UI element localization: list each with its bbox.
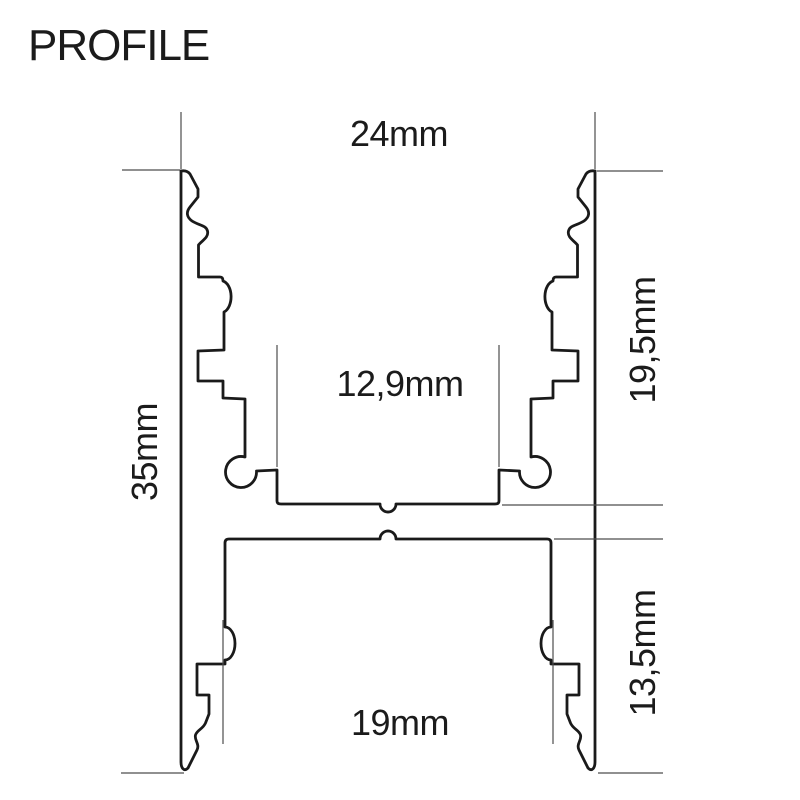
profile-cross-section-drawing: PROFILE 24mm 12,9mm 19mm 35mm 19,5mm 13,… [0,0,800,800]
profile-upper-inner-contour [181,171,388,512]
profile-outer-and-lower-contour [181,171,388,770]
dim-upper-section-height-label: 19,5mm [622,276,663,403]
page-title: PROFILE [28,21,209,70]
dim-total-height-label: 35mm [124,403,165,501]
dim-inner-channel-width-label: 12,9mm [336,363,463,404]
profile-left-half [181,171,388,770]
profile-right-half [388,171,595,770]
dim-top-width-label: 24mm [350,113,448,154]
dim-bottom-width-label: 19mm [351,702,449,743]
extension-lines [121,112,663,773]
profile-outline [181,171,595,770]
profile-drawing-page: PROFILE 24mm 12,9mm 19mm 35mm 19,5mm 13,… [0,0,800,800]
dim-lower-section-height-label: 13,5mm [622,589,663,716]
